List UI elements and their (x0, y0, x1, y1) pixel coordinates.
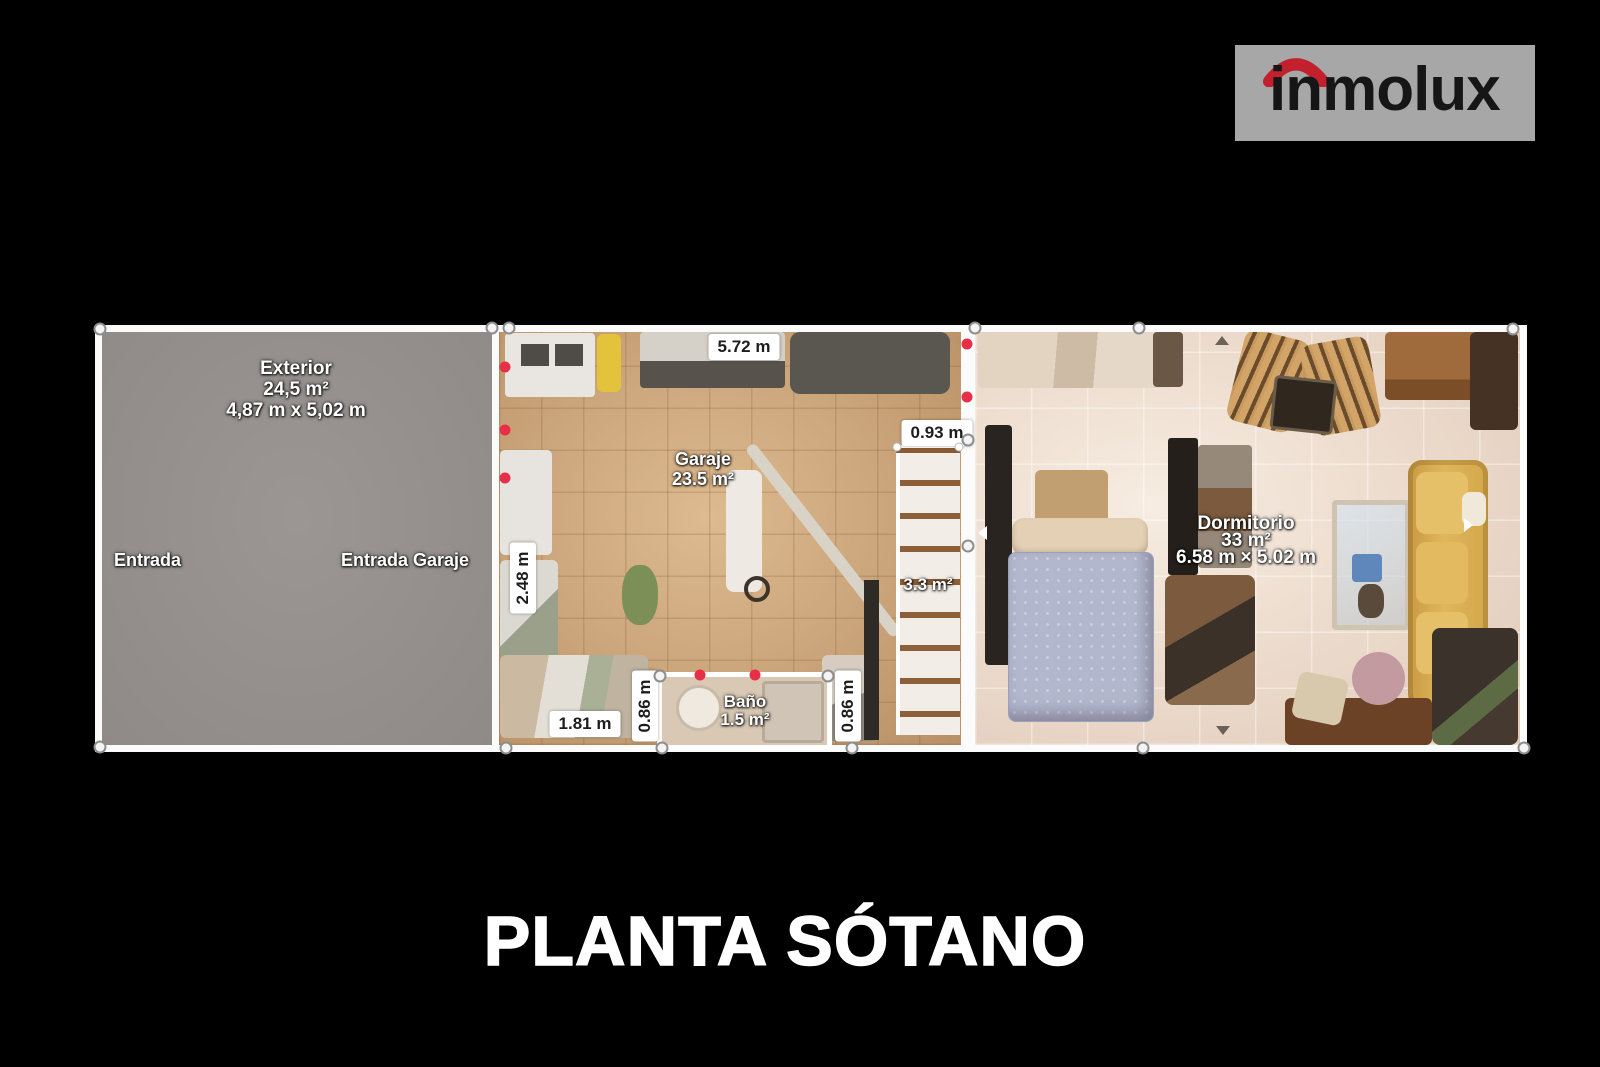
cabinet-vent (555, 344, 583, 366)
dorm-clutter-center (1165, 575, 1255, 705)
garage-yellow-item (597, 334, 621, 392)
dorm-desk (1385, 332, 1478, 400)
nav-arrow-left-icon[interactable] (978, 526, 987, 540)
measure-endpoint[interactable] (893, 443, 902, 452)
measure-point[interactable] (695, 670, 706, 681)
garage-appliance (500, 450, 552, 555)
dorm-top-counter (978, 332, 1173, 388)
measure-handle[interactable] (500, 742, 513, 755)
exterior-name: Exterior (226, 358, 365, 379)
bano-shower (762, 681, 824, 743)
measure-handle[interactable] (486, 322, 499, 335)
exterior-area: 24,5 m² (226, 379, 365, 400)
measure-handle[interactable] (656, 742, 669, 755)
garaje-name: Garaje (672, 449, 734, 469)
measure-garaje-depth: 2.48 m (510, 543, 536, 614)
measure-handle[interactable] (503, 322, 516, 335)
cabinet-vent (521, 344, 549, 366)
bano-washbasin (676, 685, 722, 731)
garage-hose-ring (744, 576, 770, 602)
dormitorio-dimensions: 6.58 m × 5.02 m (1176, 549, 1316, 566)
plan-title: PLANTA SÓTANO (0, 901, 1570, 981)
dorm-clutter-bottom-right (1432, 628, 1518, 745)
garage-plant (622, 565, 658, 625)
logo: inmolux (1235, 45, 1535, 141)
measure-point[interactable] (750, 670, 761, 681)
garage-dark-strip (864, 580, 879, 740)
measure-handle[interactable] (94, 323, 107, 336)
glass-table-item (1352, 554, 1382, 582)
exterior-label: Exterior 24,5 m² 4,87 m x 5,02 m (226, 358, 365, 421)
dorm-tv-table (1269, 375, 1337, 435)
nav-arrow-down-icon[interactable] (1216, 726, 1230, 735)
stairs-area-label: 3.3 m² (903, 575, 952, 595)
garaje-label: Garaje 23.5 m² (672, 449, 734, 489)
nav-arrow-up-icon[interactable] (1215, 336, 1229, 345)
measure-handle[interactable] (1518, 742, 1531, 755)
dorm-chair (1291, 670, 1350, 726)
measure-handle[interactable] (962, 540, 975, 553)
measure-garaje-width: 5.72 m (709, 334, 780, 360)
garaje-area: 23.5 m² (672, 469, 734, 489)
measure-point[interactable] (962, 392, 973, 403)
measure-bano-right: 0.86 m (835, 671, 861, 742)
dorm-top-dark-item (1153, 332, 1183, 387)
bano-name: Baño (720, 693, 769, 711)
measure-handle[interactable] (1133, 322, 1146, 335)
bed-pillows (1012, 518, 1148, 556)
measure-handle[interactable] (1507, 323, 1520, 336)
measure-handle[interactable] (846, 742, 859, 755)
dormitorio-label: Dormitorio 33 m² 6.58 m × 5.02 m (1176, 515, 1316, 566)
measure-handle[interactable] (94, 741, 107, 754)
measure-garaje-bottom: 1.81 m (550, 711, 621, 737)
measure-point[interactable] (500, 425, 511, 436)
measure-handle[interactable] (969, 322, 982, 335)
measure-endpoint[interactable] (955, 443, 964, 452)
entrada-garaje-label: Entrada Garaje (341, 550, 469, 571)
glass-table-item (1358, 584, 1384, 618)
garage-dark-area (790, 332, 950, 394)
measure-handle[interactable] (962, 434, 975, 447)
entrada-label: Entrada (114, 550, 181, 571)
bano-label: Baño 1.5 m² (720, 693, 769, 729)
measure-handle[interactable] (654, 670, 667, 683)
measure-point[interactable] (962, 339, 973, 350)
measure-bano-left: 0.86 m (632, 671, 658, 742)
canvas: inmolux Exterior 24,5 m² 4,87 m x 5,02 m… (0, 0, 1600, 1067)
bano-area: 1.5 m² (720, 711, 769, 729)
sofa-cushion (1416, 542, 1468, 604)
dorm-corner-clutter (1470, 332, 1518, 430)
dorm-pouf (1352, 652, 1405, 705)
nav-arrow-right-icon[interactable] (1464, 518, 1473, 532)
sofa-cushion (1416, 472, 1468, 534)
measure-handle[interactable] (1137, 742, 1150, 755)
measure-handle[interactable] (822, 670, 835, 683)
exterior-dimensions: 4,87 m x 5,02 m (226, 400, 365, 421)
logo-text: inmolux (1269, 59, 1500, 121)
measure-point[interactable] (500, 362, 511, 373)
measure-point[interactable] (500, 473, 511, 484)
bed-duvet (1008, 552, 1154, 722)
